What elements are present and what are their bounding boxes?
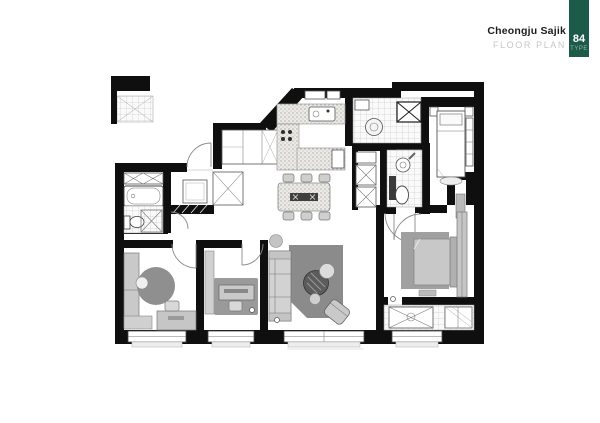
wall-cabinet — [327, 91, 340, 99]
floor-plan-drawing — [0, 0, 600, 423]
window-bedroom-left — [128, 331, 186, 347]
bedroom-bottom-middle — [205, 251, 258, 315]
entrance — [183, 130, 278, 205]
dining-chair — [283, 212, 294, 220]
outlet-symbol — [275, 318, 280, 323]
windows — [128, 331, 442, 349]
utility-room — [353, 98, 421, 143]
wall-cabinet — [305, 91, 325, 99]
bedroom-bottom-left — [124, 253, 196, 330]
entry-bench — [183, 180, 207, 203]
side-table — [320, 264, 335, 279]
bathroom-left — [124, 173, 163, 233]
floor-plan-page: Cheongju Sajik FLOOR PLAN 84 TYPE — [0, 0, 600, 423]
vanity — [389, 307, 433, 328]
shelf — [466, 118, 473, 166]
chair — [136, 277, 148, 289]
dining-chair — [319, 212, 330, 220]
sofa — [269, 251, 291, 321]
wardrobe — [205, 251, 214, 314]
nightstand — [465, 107, 473, 116]
plant — [270, 235, 283, 248]
linen-cabinet — [124, 173, 163, 184]
washer — [366, 119, 383, 136]
ac-unit — [397, 102, 421, 122]
foot-rug — [440, 177, 462, 185]
dining-chair — [319, 174, 330, 182]
master-bedroom — [391, 212, 468, 302]
dining-chair — [301, 212, 312, 220]
shower — [445, 307, 472, 328]
living-room — [269, 235, 351, 326]
building-core — [117, 96, 153, 122]
dining-area — [278, 174, 330, 220]
kitchen-sink — [309, 107, 335, 121]
dining-chair — [301, 174, 312, 182]
kitchen-appliance — [332, 150, 344, 168]
master-bathroom — [384, 305, 474, 330]
window-living-room — [284, 331, 364, 347]
wardrobe — [457, 212, 467, 297]
bathroom-small — [356, 150, 422, 207]
outlet-symbol — [391, 297, 396, 302]
entry-closet — [213, 172, 243, 205]
table-runner — [290, 193, 318, 201]
bench — [419, 290, 436, 296]
stool — [310, 294, 321, 305]
window-master-bath — [392, 331, 442, 347]
dining-chair — [283, 174, 294, 182]
window-bedroom-middle — [208, 331, 254, 347]
pantry-cabinet — [356, 152, 376, 207]
bathtub — [124, 186, 163, 206]
master-bed — [414, 237, 463, 287]
desk — [157, 301, 196, 330]
shoe-cabinet — [222, 130, 278, 164]
outlet-symbol — [250, 308, 255, 313]
low-cabinet — [124, 316, 152, 329]
bed — [437, 111, 465, 177]
